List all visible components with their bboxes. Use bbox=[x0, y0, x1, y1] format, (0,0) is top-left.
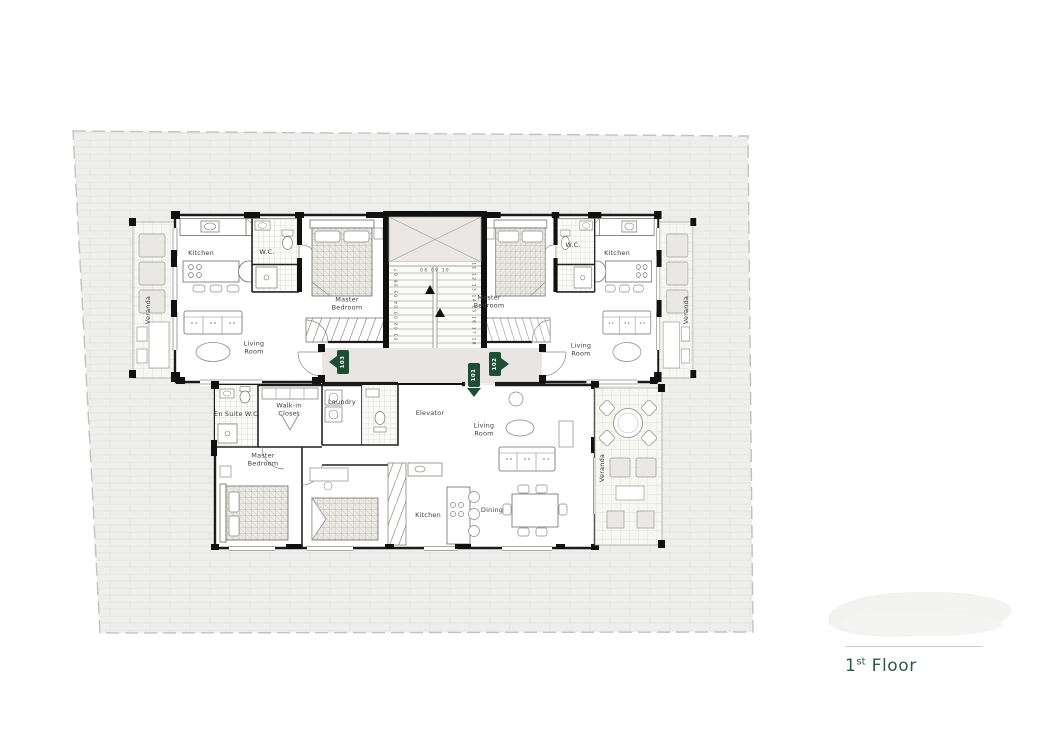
unit-marker-101: 101 bbox=[468, 363, 480, 387]
floor-number: 1 bbox=[845, 656, 856, 676]
room-label-living-room-101: Living Room bbox=[474, 422, 495, 439]
room-label-veranda-103: Veranda bbox=[144, 296, 152, 324]
stair-numbers-flight-up: 01 02 03 04 05 06 07 bbox=[395, 268, 400, 341]
floor-plan-drawing bbox=[0, 0, 1064, 750]
room-label-kitchen-101: Kitchen bbox=[415, 511, 441, 519]
unit-marker-103-label: 103 bbox=[340, 356, 346, 369]
room-label-living-room-103: Living Room bbox=[244, 340, 265, 357]
room-label-living-room-102: Living Room bbox=[571, 342, 592, 359]
room-label-laundry-101: Laundry bbox=[328, 398, 356, 406]
room-label-wc-102: W.C. bbox=[565, 241, 580, 249]
unit-marker-103-arrow-icon bbox=[329, 356, 337, 368]
building bbox=[129, 211, 696, 552]
unit-marker-101-label: 101 bbox=[471, 369, 477, 382]
unit-marker-102: 102 bbox=[489, 352, 501, 376]
room-label-kitchen-103: Kitchen bbox=[188, 249, 214, 257]
room-label-kitchen-102: Kitchen bbox=[604, 249, 630, 257]
room-label-master-bedroom-102: Master Bedroom bbox=[474, 294, 505, 311]
room-label-elevator: Elevator bbox=[416, 409, 445, 417]
floor-plan-page: Kitchen W.C. Master Bedroom Living Room … bbox=[0, 0, 1064, 750]
room-label-dining-101: Dining bbox=[481, 506, 503, 514]
room-label-veranda-101: Veranda bbox=[598, 454, 606, 482]
room-label-master-bedroom-101: Master Bedroom bbox=[248, 452, 279, 469]
floor-ordinal: st bbox=[856, 656, 865, 667]
floor-word: Floor bbox=[872, 656, 917, 676]
room-label-master-bedroom-103: Master Bedroom bbox=[332, 296, 363, 313]
floor-title: 1st Floor bbox=[845, 656, 917, 676]
unit-marker-103: 103 bbox=[337, 350, 349, 374]
stair-numbers-landing: 08 09 10 bbox=[420, 269, 450, 274]
unit-marker-102-arrow-icon bbox=[501, 358, 509, 370]
unit-marker-101-arrow-icon bbox=[467, 388, 481, 397]
room-label-walk-in-closet-101: Walk-in Closet bbox=[276, 402, 301, 419]
room-label-veranda-102: Veranda bbox=[682, 296, 690, 324]
footer-divider bbox=[845, 646, 983, 647]
room-label-wc-103: W.C. bbox=[259, 248, 274, 256]
unit-marker-102-label: 102 bbox=[492, 358, 498, 371]
stair-numbers-flight-down: 11 12 13 14 15 16 17 18 bbox=[471, 262, 476, 345]
room-label-en-suite-wc-101: En Suite W.C. bbox=[214, 410, 260, 418]
